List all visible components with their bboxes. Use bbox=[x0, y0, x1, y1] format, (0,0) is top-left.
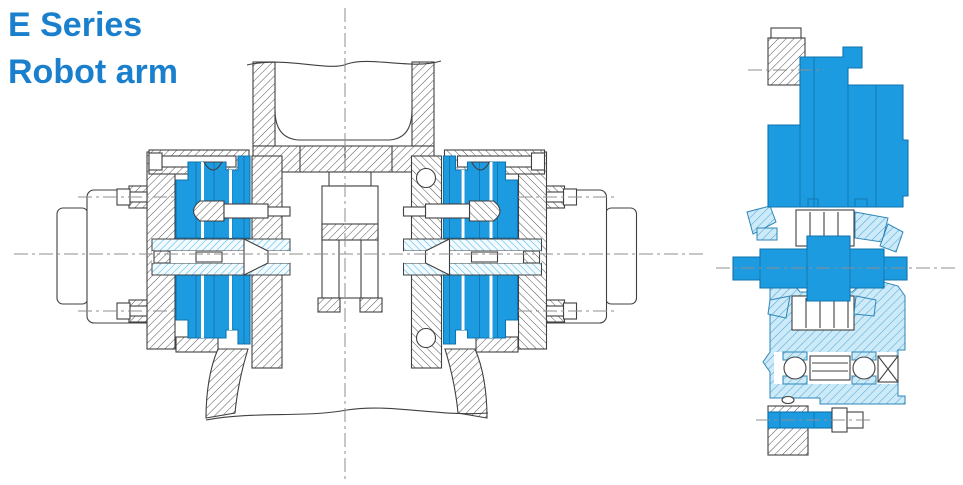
bearing-spacer bbox=[810, 356, 850, 380]
housing-wall-left bbox=[253, 62, 275, 146]
bearing-ball-right bbox=[853, 357, 875, 379]
motor-end-cap bbox=[57, 208, 88, 304]
upper-arm-housing bbox=[247, 61, 441, 146]
housing-cavity bbox=[275, 110, 412, 140]
technical-drawing-canvas bbox=[0, 0, 963, 485]
side-section-view bbox=[733, 28, 908, 455]
bearing-ball-bottom bbox=[417, 329, 436, 348]
housing-wall-right bbox=[412, 62, 434, 146]
front-section-view bbox=[57, 61, 637, 420]
center-shaft-boss bbox=[318, 172, 382, 312]
bearing-ball-top bbox=[417, 169, 436, 188]
boss-bolt-left bbox=[318, 298, 340, 312]
fork-leg-left bbox=[206, 349, 248, 418]
oil-port bbox=[782, 397, 794, 404]
fork-leg-right bbox=[445, 349, 487, 418]
boss-bolt-right bbox=[360, 298, 382, 312]
right-actuator bbox=[404, 150, 637, 368]
bearing-ball-left bbox=[784, 357, 806, 379]
output-fork bbox=[176, 337, 518, 420]
page: E Series Robot arm bbox=[0, 0, 963, 485]
bottom-flange bbox=[768, 406, 863, 455]
center-shaft bbox=[152, 239, 290, 275]
left-actuator bbox=[57, 150, 290, 368]
break-line-bottom bbox=[206, 408, 488, 420]
